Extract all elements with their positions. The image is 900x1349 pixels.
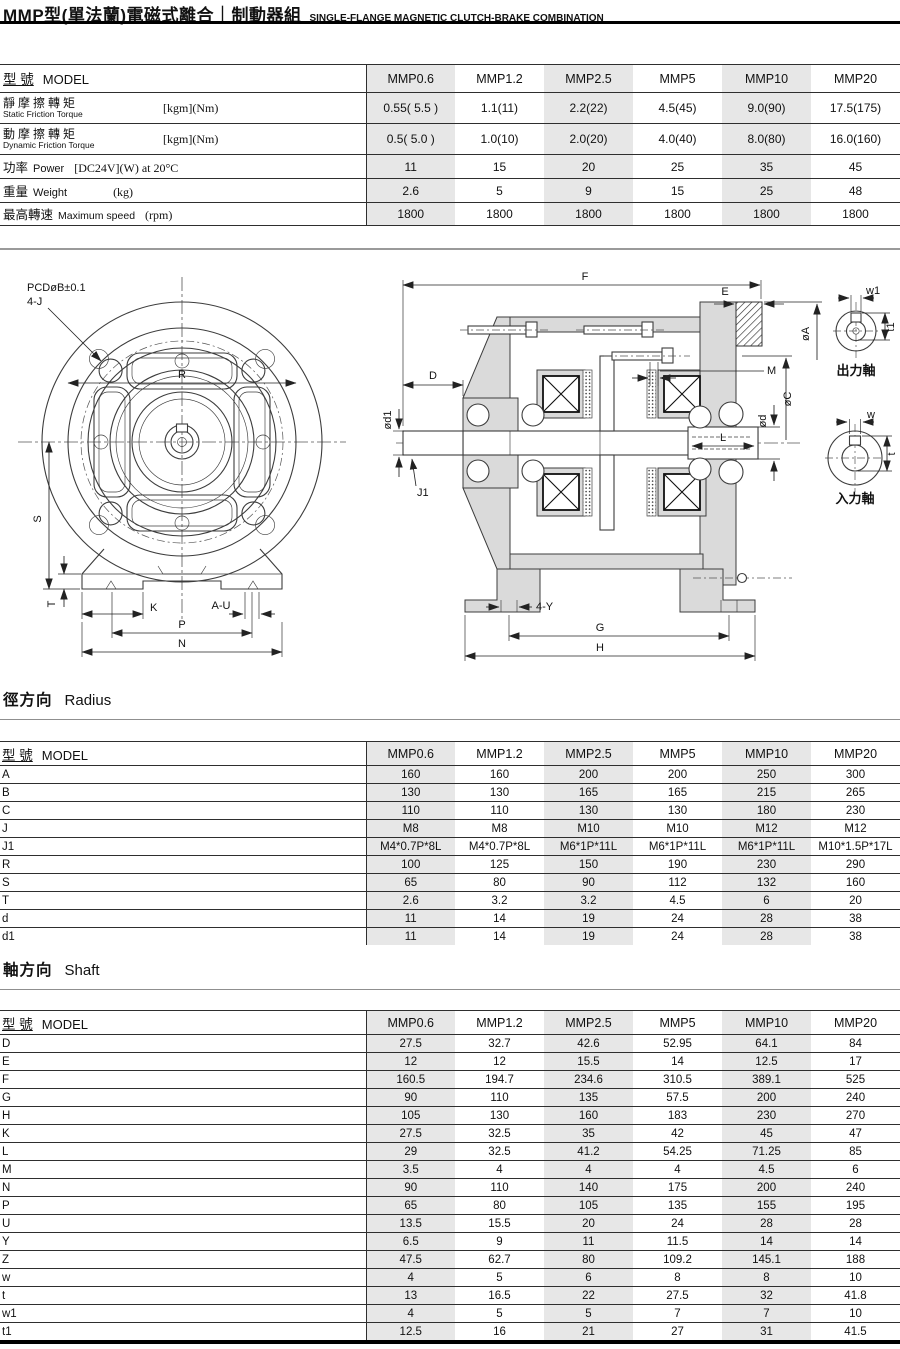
model-column-header: MMP0.6 [366,65,455,93]
dimension-value: 17 [811,1053,900,1071]
dim-label-L: L [720,432,726,444]
model-column-header: MMP2.5 [544,1011,633,1035]
spec-value: 9.0(90) [722,93,811,124]
dimension-value: 47 [811,1125,900,1143]
dimension-value: 105 [366,1107,455,1125]
dimension-value: 45 [722,1125,811,1143]
model-column-header: MMP5 [633,65,722,93]
dimension-row: R 100 125 150 190 230 290 [0,856,900,874]
dimension-value: 19 [544,910,633,928]
dimension-value: 165 [633,784,722,802]
dimension-row: t1 12.5 16 21 27 31 41.5 [0,1323,900,1341]
dimension-value: 84 [811,1035,900,1053]
dimension-row-label: t [0,1287,366,1305]
dim-label-J1: J1 [417,487,429,499]
dimension-value: 65 [366,874,455,892]
dimension-row: E 12 12 15.5 14 12.5 17 [0,1053,900,1071]
mounting-hole [99,502,122,525]
dim-label-AU: A-U [212,600,231,612]
front-view-drawing: PCDøB±0.1 4-J R S T K A-U P [18,277,346,657]
foot-bracket [465,569,540,612]
dimension-row: P 65 80 105 135 155 195 [0,1197,900,1215]
dimension-value: 11 [366,928,455,946]
spec-value: 8.0(80) [722,124,811,155]
dimension-value: 42.6 [544,1035,633,1053]
dimension-value: 27.5 [633,1287,722,1305]
spec-value: 15 [633,179,722,203]
dimension-row-label: A [0,766,366,784]
dimension-value: 130 [633,802,722,820]
dimension-value: 130 [544,802,633,820]
dimension-row: S 65 80 90 112 132 160 [0,874,900,892]
spec-value: 1.0(10) [455,124,544,155]
dimension-row-label: L [0,1143,366,1161]
dimension-row-label: Y [0,1233,366,1251]
spec-value: 1800 [811,203,900,226]
dimension-row-label: S [0,874,366,892]
dimension-row-label: N [0,1179,366,1197]
dimension-row: A 160 160 200 200 250 300 [0,766,900,784]
dimension-value: M8 [366,820,455,838]
model-column-header: MMP10 [722,1011,811,1035]
dimension-value: 11 [544,1233,633,1251]
friction-disc-pack [583,468,592,516]
dimension-value: 160 [455,766,544,784]
dimension-row: K 27.5 32.5 35 42 45 47 [0,1125,900,1143]
dimension-value: 200 [633,766,722,784]
dimension-value: 165 [544,784,633,802]
dimension-value: 11 [366,910,455,928]
dimension-value: 6 [722,892,811,910]
dimension-value: 64.1 [722,1035,811,1053]
mounting-hole [242,359,265,382]
dimension-value: 11.5 [633,1233,722,1251]
dimension-value: 29 [366,1143,455,1161]
dimension-value: 27 [633,1323,722,1341]
model-column-header: MMP10 [722,65,811,93]
keyway [177,424,188,432]
dim-label-oA: øA [800,326,812,341]
dimension-row: G 90 110 135 57.5 200 240 [0,1089,900,1107]
dim-label-od: ød [757,415,769,428]
radius-table: 型 號MODEL MMP0.6 MMP1.2 MMP2.5 MMP5 MMP10… [0,741,900,945]
shaft-header-row: 型 號MODEL MMP0.6 MMP1.2 MMP2.5 MMP5 MMP10… [0,1011,900,1035]
weight-row: 重量Weight(kg) 2.6 5 9 15 25 48 [0,179,900,203]
dimension-value: 14 [633,1053,722,1071]
dimension-value: 20 [544,1215,633,1233]
keyway [851,313,861,322]
dimension-row-label: M [0,1161,366,1179]
dimension-value: 28 [722,928,811,946]
dimension-value: 41.5 [811,1323,900,1341]
dimension-value: 145.1 [722,1251,811,1269]
dimension-value: 80 [544,1251,633,1269]
dimension-row-label: D [0,1035,366,1053]
output-shaft-caption: 出力軸 [836,363,875,378]
model-header-label: 型 號MODEL [0,1011,366,1035]
dimension-value: 21 [544,1323,633,1341]
spec-value: 1800 [633,203,722,226]
dimension-value: 140 [544,1179,633,1197]
dimension-value: 109.2 [633,1251,722,1269]
dim-label-D: D [429,370,437,382]
dimension-value: 32.5 [455,1125,544,1143]
spec-value: 20 [544,155,633,179]
dimension-value: 22 [544,1287,633,1305]
dimension-row-label: G [0,1089,366,1107]
dimension-value: 100 [366,856,455,874]
dimension-value: 52.95 [633,1035,722,1053]
shaft-section-heading: 軸方向Shaft [3,958,100,980]
spec-table: 型 號MODEL MMP0.6 MMP1.2 MMP2.5 MMP5 MMP10… [0,64,900,226]
dimension-row-label: K [0,1125,366,1143]
dimension-value: 135 [544,1089,633,1107]
dimension-value: 4.5 [722,1161,811,1179]
dimension-value: 8 [633,1269,722,1287]
dimension-value: 4 [366,1305,455,1323]
heading-rule [0,719,900,720]
dimension-value: 195 [811,1197,900,1215]
dimension-value: 10 [811,1305,900,1323]
dimension-row: B 130 130 165 165 215 265 [0,784,900,802]
dimension-value: 180 [722,802,811,820]
dim-label-S: S [32,515,44,522]
dimension-value: 35 [544,1125,633,1143]
dimension-value: 3.2 [455,892,544,910]
dimension-value: 85 [811,1143,900,1161]
spec-value: 0.5( 5.0 ) [366,124,455,155]
dimension-value: 110 [455,802,544,820]
dim-label-H: H [596,642,604,654]
dimension-row-label: w [0,1269,366,1287]
dimension-value: 110 [455,1179,544,1197]
dim-label-E: E [721,286,728,298]
dimension-value: 130 [455,1107,544,1125]
dimension-value: 6.5 [366,1233,455,1251]
dimension-value: 389.1 [722,1071,811,1089]
dimension-value: 41.8 [811,1287,900,1305]
dimension-row-label: B [0,784,366,802]
spec-value: 11 [366,155,455,179]
dimension-row: C 110 110 130 130 180 230 [0,802,900,820]
spec-value: 2.0(20) [544,124,633,155]
dimension-value: 80 [455,874,544,892]
dimension-value: M4*0.7P*8L [455,838,544,856]
dynamic-torque-label: 動摩擦轉矩Dynamic Friction Torque[kgm](Nm) [0,124,366,155]
spec-value: 17.5(175) [811,93,900,124]
dimension-value: 15.5 [455,1215,544,1233]
dimension-value: 3.2 [544,892,633,910]
dimension-value: 28 [722,910,811,928]
bearing [689,458,711,480]
spec-value: 1800 [544,203,633,226]
static-torque-row: 靜摩擦轉矩Static Friction Torque[kgm](Nm) 0.5… [0,93,900,124]
spec-value: 1800 [366,203,455,226]
dimension-row-label: w1 [0,1305,366,1323]
dimension-value: 16.5 [455,1287,544,1305]
dimension-value: M6*1P*11L [722,838,811,856]
model-header-label: 型 號MODEL [0,65,366,93]
dim-label-T: T [46,600,58,607]
dimension-value: 14 [455,928,544,946]
page-bottom-rule [0,1340,900,1344]
input-shaft-end-view: w t 入力軸 [825,409,898,506]
dimension-row: D 27.5 32.7 42.6 52.95 64.1 84 [0,1035,900,1053]
dimension-value: 80 [455,1197,544,1215]
dimension-row: d 11 14 19 24 28 38 [0,910,900,928]
dimension-value: 13 [366,1287,455,1305]
dimension-row-label: d1 [0,928,366,946]
dimension-row: w 4 5 6 8 8 10 [0,1269,900,1287]
spec-value: 35 [722,155,811,179]
input-shaft-caption: 入力軸 [835,491,874,506]
dimension-value: 215 [722,784,811,802]
friction-disc-pack [647,468,656,516]
dimension-value: 7 [722,1305,811,1323]
spec-value: 25 [633,155,722,179]
dimension-value: 12.5 [722,1053,811,1071]
dimension-row-label: U [0,1215,366,1233]
dimension-value: 24 [633,910,722,928]
mounting-hole [242,502,265,525]
dim-label-P: P [178,619,185,631]
dimension-value: 300 [811,766,900,784]
dimension-row-label: d [0,910,366,928]
spec-value: 25 [722,179,811,203]
spec-value: 1800 [455,203,544,226]
dimension-value: 160 [544,1107,633,1125]
dimension-value: 183 [633,1107,722,1125]
dimension-value: 112 [633,874,722,892]
flange-wall-section [736,302,762,346]
spec-value: 4.5(45) [633,93,722,124]
dimension-value: 65 [366,1197,455,1215]
dimension-value: 4 [633,1161,722,1179]
model-column-header: MMP20 [811,1011,900,1035]
model-column-header: MMP2.5 [544,742,633,766]
dim-label-K: K [150,602,158,614]
dimension-value: 194.7 [455,1071,544,1089]
bearing [689,406,711,428]
dim-label-t: t [886,452,898,455]
dimension-value: 16 [455,1323,544,1341]
model-column-header: MMP1.2 [455,1011,544,1035]
dimension-row-label: Z [0,1251,366,1269]
dimension-value: 6 [811,1161,900,1179]
dimension-value: 47.5 [366,1251,455,1269]
dimension-value: 230 [811,802,900,820]
dimension-value: 14 [722,1233,811,1251]
dimension-value: 12 [455,1053,544,1071]
dimension-row: L 29 32.5 41.2 54.25 71.25 85 [0,1143,900,1161]
dimension-value: 110 [455,1089,544,1107]
dimension-value: 38 [811,928,900,946]
weight-label: 重量Weight(kg) [0,179,366,203]
dimension-value: M8 [455,820,544,838]
dimension-value: M4*0.7P*8L [366,838,455,856]
dimension-value: 240 [811,1179,900,1197]
dimension-value: 4 [544,1161,633,1179]
dimension-value: M12 [811,820,900,838]
model-column-header: MMP1.2 [455,65,544,93]
dimension-value: 5 [455,1269,544,1287]
dimension-row-label: J [0,820,366,838]
dimension-value: 62.7 [455,1251,544,1269]
output-shaft-end-view: w1 t1 出力軸 [833,285,897,378]
dimension-value: 12 [366,1053,455,1071]
dimension-value: 57.5 [633,1089,722,1107]
model-column-header: MMP1.2 [455,742,544,766]
spec-value: 1.1(11) [455,93,544,124]
spec-value: 15 [455,155,544,179]
dimension-value: 270 [811,1107,900,1125]
power-label: 功率Power[DC24V](W) at 20°C [0,155,366,179]
dimension-value: 41.2 [544,1143,633,1161]
spec-value: 1800 [722,203,811,226]
dimension-value: 9 [455,1233,544,1251]
dimension-value: 10 [811,1269,900,1287]
title-divider [0,21,900,24]
dimension-value: 19 [544,928,633,946]
dimension-value: 160.5 [366,1071,455,1089]
model-column-header: MMP5 [633,1011,722,1035]
dimension-row: d1 11 14 19 24 28 38 [0,928,900,946]
dimension-value: 135 [633,1197,722,1215]
dimension-value: 310.5 [633,1071,722,1089]
model-header-label: 型 號MODEL [0,742,366,766]
dimension-value: 240 [811,1089,900,1107]
dimension-value: 200 [722,1179,811,1197]
dimension-value: 150 [544,856,633,874]
dimension-value: 32.5 [455,1143,544,1161]
dimension-value: 32 [722,1287,811,1305]
radius-header-row: 型 號MODEL MMP0.6 MMP1.2 MMP2.5 MMP5 MMP10… [0,742,900,766]
dimension-value: 160 [366,766,455,784]
dimension-value: 130 [455,784,544,802]
spec-value: 45 [811,155,900,179]
dimension-row: M 3.5 4 4 4 4.5 6 [0,1161,900,1179]
dimension-value: 200 [722,1089,811,1107]
dimension-value: 42 [633,1125,722,1143]
dimension-value: 15.5 [544,1053,633,1071]
pcd-label: PCDøB±0.1 [27,282,86,294]
dimension-value: 90 [544,874,633,892]
friction-disc-pack [583,370,592,418]
dim-label-4Y: 4-Y [536,601,554,613]
dimension-value: 71.25 [722,1143,811,1161]
dim-label-w1: w1 [865,285,880,297]
dimension-value: M6*1P*11L [633,838,722,856]
dimension-value: 2.6 [366,892,455,910]
dimension-row-label: R [0,856,366,874]
dim-label-G: G [596,622,605,634]
keyway [850,436,861,445]
dimension-value: 20 [811,892,900,910]
dimension-value: 27.5 [366,1035,455,1053]
dimension-value: 24 [633,928,722,946]
dimension-value: 125 [455,856,544,874]
model-column-header: MMP20 [811,742,900,766]
dim-label-N: N [178,638,186,650]
dimension-row: J M8 M8 M10 M10 M12 M12 [0,820,900,838]
model-column-header: MMP0.6 [366,742,455,766]
dimension-value: 6 [544,1269,633,1287]
dimension-row-label: E [0,1053,366,1071]
dimension-value: 4.5 [633,892,722,910]
dimension-value: 155 [722,1197,811,1215]
radius-section-heading: 徑方向Radius [3,688,111,710]
dimension-value: 90 [366,1179,455,1197]
spec-header-row: 型 號MODEL MMP0.6 MMP1.2 MMP2.5 MMP5 MMP10… [0,65,900,93]
dynamic-torque-row: 動摩擦轉矩Dynamic Friction Torque[kgm](Nm) 0.… [0,124,900,155]
dimension-row: N 90 110 140 175 200 240 [0,1179,900,1197]
dimension-value: 4 [455,1161,544,1179]
dimension-value: 230 [722,1107,811,1125]
dimension-value: 90 [366,1089,455,1107]
technical-drawing: PCDøB±0.1 4-J R S T K A-U P [0,249,900,665]
dimension-value: M6*1P*11L [544,838,633,856]
bearing [522,460,544,482]
dimension-value: 54.25 [633,1143,722,1161]
dimension-row: F 160.5 194.7 234.6 310.5 389.1 525 [0,1071,900,1089]
dimension-value: 24 [633,1215,722,1233]
dimension-value: 3.5 [366,1161,455,1179]
dimension-value: 230 [722,856,811,874]
dim-label-R: R [178,369,186,381]
dimension-value: 190 [633,856,722,874]
shaft-table: 型 號MODEL MMP0.6 MMP1.2 MMP2.5 MMP5 MMP10… [0,1010,900,1340]
dimension-value: 28 [811,1215,900,1233]
dimension-value: M12 [722,820,811,838]
dimension-value: 290 [811,856,900,874]
dimension-value: 234.6 [544,1071,633,1089]
spec-value: 2.2(22) [544,93,633,124]
max-speed-label: 最高轉速Maximum speed(rpm) [0,203,366,226]
spec-value: 5 [455,179,544,203]
dimension-value: 132 [722,874,811,892]
dimension-value: 110 [366,802,455,820]
bolt-count-label: 4-J [27,296,42,308]
dimension-row: w1 4 5 5 7 7 10 [0,1305,900,1323]
friction-disc-pack [647,370,656,418]
dimension-value: 27.5 [366,1125,455,1143]
dimension-value: 265 [811,784,900,802]
dimension-value: 105 [544,1197,633,1215]
dimension-value: 13.5 [366,1215,455,1233]
dim-label-od1: ød1 [382,411,394,430]
dim-label-oC: øC [782,392,794,407]
dimension-row: U 13.5 15.5 20 24 28 28 [0,1215,900,1233]
dimension-row: Z 47.5 62.7 80 109.2 145.1 188 [0,1251,900,1269]
bearing [719,402,743,426]
model-column-header: MMP20 [811,65,900,93]
dimension-row-label: t1 [0,1323,366,1341]
dimension-value: 14 [811,1233,900,1251]
spec-value: 9 [544,179,633,203]
dimension-row-label: H [0,1107,366,1125]
dimension-row-label: T [0,892,366,910]
dimension-value: 5 [455,1305,544,1323]
power-row: 功率Power[DC24V](W) at 20°C 11 15 20 25 35… [0,155,900,179]
max-speed-row: 最高轉速Maximum speed(rpm) 1800 1800 1800 18… [0,203,900,226]
spec-value: 0.55( 5.5 ) [366,93,455,124]
dimension-row-label: J1 [0,838,366,856]
heading-rule [0,989,900,990]
dimension-value: 7 [633,1305,722,1323]
dimension-row: H 105 130 160 183 230 270 [0,1107,900,1125]
dimension-row-label: C [0,802,366,820]
dim-label-t1: t1 [885,322,897,331]
